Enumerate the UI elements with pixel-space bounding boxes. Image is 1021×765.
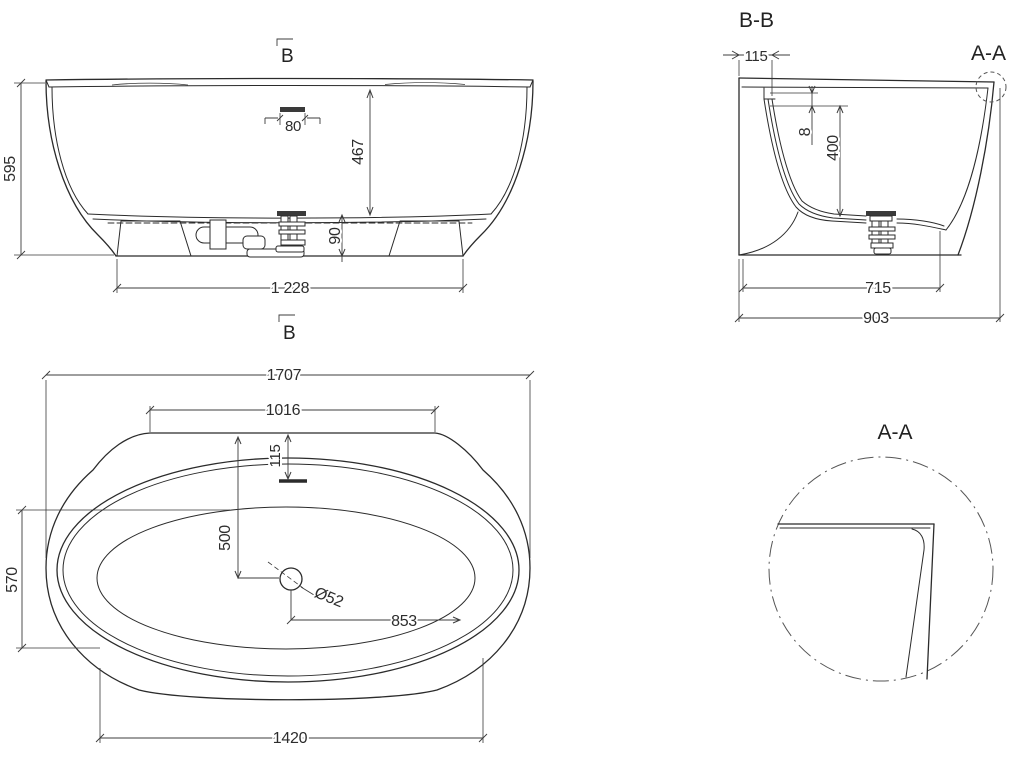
technical-drawing-canvas: B B bbox=[0, 0, 1021, 765]
floor-right bbox=[897, 219, 946, 230]
rim-top bbox=[739, 78, 994, 82]
dim-base-width-label: 715 bbox=[865, 280, 891, 297]
rim-lower-edge bbox=[49, 86, 530, 88]
overflow-slot-front bbox=[280, 107, 305, 112]
drain-ring-3 bbox=[871, 243, 893, 248]
dim-570-extensions bbox=[16, 510, 230, 648]
drain-ring-2 bbox=[869, 235, 895, 239]
dim-basin-length-label: 1420 bbox=[273, 730, 308, 747]
section-marker-top: B bbox=[277, 39, 294, 67]
left-wall-cut-inner bbox=[772, 99, 866, 216]
dim-rim-ledge-label: 115 bbox=[744, 48, 767, 65]
section-marker-top-label: B bbox=[281, 46, 294, 67]
rim-outer-edge bbox=[927, 524, 934, 679]
left-wall-cut-mid bbox=[768, 99, 866, 220]
drain-foot bbox=[874, 248, 891, 254]
dim-rim-lip-label: 8 bbox=[797, 127, 814, 136]
section-marker-bottom-label: B bbox=[283, 323, 296, 344]
rim-inner-ellipse bbox=[63, 464, 513, 676]
waste-pipe-fitting bbox=[210, 220, 226, 249]
right-inner-wall bbox=[946, 88, 988, 230]
section-bb-drain bbox=[866, 211, 896, 254]
dim-overflow-width-label: 80 bbox=[285, 118, 301, 135]
front-dimensions: 595 467 80 90 1 228 bbox=[2, 79, 467, 297]
dim-inner-depth-label: 467 bbox=[350, 139, 367, 165]
detail-aa-view: A-A bbox=[769, 421, 993, 681]
section-bb-outline bbox=[739, 78, 994, 255]
left-outer-wall bbox=[46, 81, 116, 256]
dim-deck-edge-label: 1016 bbox=[266, 402, 301, 419]
section-bb-dimensions: 115 8 400 715 903 bbox=[723, 48, 1004, 327]
right-outer-wall bbox=[958, 82, 994, 255]
detail-aa-title: A-A bbox=[877, 421, 912, 444]
waste-trap-body bbox=[243, 236, 265, 249]
section-bb-view: B-B A-A bbox=[723, 9, 1006, 327]
dim-overall-width-label: 903 bbox=[863, 310, 889, 327]
rim-lip-step bbox=[764, 88, 775, 99]
drain-flange bbox=[866, 211, 896, 216]
drain-diameter-leader bbox=[301, 587, 314, 595]
drain-flange bbox=[277, 211, 306, 216]
detail-callout-label: A-A bbox=[971, 42, 1006, 65]
section-cut-flag-bottom bbox=[279, 315, 295, 322]
dim-basin-width-label: 570 bbox=[4, 567, 21, 593]
dim-overall-length-label: 1707 bbox=[267, 367, 302, 384]
dim-basin-depth-label: 400 bbox=[825, 135, 842, 161]
detail-rim-profile bbox=[778, 524, 934, 679]
dim-715-extensions bbox=[743, 231, 940, 292]
left-wall-cut-outer bbox=[764, 99, 866, 223]
dim-drain-offset-label: 853 bbox=[391, 613, 417, 630]
right-outer-wall bbox=[463, 81, 533, 256]
rim-inner-edge-fillet bbox=[906, 529, 924, 677]
rim-outer-ellipse bbox=[57, 458, 519, 682]
dim-overflow-offset-label: 115 bbox=[267, 444, 284, 467]
dim-drain-from-edge-label: 500 bbox=[217, 525, 234, 551]
dim-base-length-label: 1 228 bbox=[271, 280, 310, 297]
dim-8-extensions bbox=[770, 93, 848, 106]
detail-callout-circle bbox=[976, 72, 1006, 102]
left-base-recess bbox=[117, 221, 191, 256]
drain-leader-diagonal bbox=[268, 562, 303, 588]
drain-collar bbox=[870, 216, 892, 221]
drain-ring-3 bbox=[281, 240, 305, 245]
rim-top-edge bbox=[46, 79, 533, 81]
section-cut-flag-top bbox=[277, 39, 293, 46]
dim-overall-height-label: 595 bbox=[2, 156, 19, 182]
section-bb-title: B-B bbox=[739, 9, 774, 32]
rim-underside bbox=[742, 87, 988, 88]
right-base-recess bbox=[389, 221, 463, 256]
detail-aa-callout: A-A bbox=[971, 42, 1006, 102]
dim-base-height-label: 90 bbox=[327, 227, 344, 245]
far-rim-arcs bbox=[112, 83, 465, 85]
left-shell-silhouette bbox=[739, 212, 798, 255]
drain-ring-1 bbox=[869, 227, 895, 231]
detail-boundary-circle bbox=[769, 457, 993, 681]
plan-dimensions: 1707 1016 115 500 570 Ø52 853 14 bbox=[4, 367, 534, 747]
front-elevation-view: B B bbox=[2, 39, 533, 344]
drain-ring-2 bbox=[279, 230, 305, 234]
section-marker-bottom: B bbox=[279, 315, 296, 344]
drain-ring-1 bbox=[279, 222, 305, 226]
dim-drain-diameter-label: Ø52 bbox=[312, 584, 346, 611]
plan-view: 1707 1016 115 500 570 Ø52 853 14 bbox=[4, 367, 534, 747]
drawing-page: B B bbox=[0, 0, 1021, 765]
basin-ellipse bbox=[97, 507, 475, 649]
drain-foot bbox=[276, 246, 304, 252]
